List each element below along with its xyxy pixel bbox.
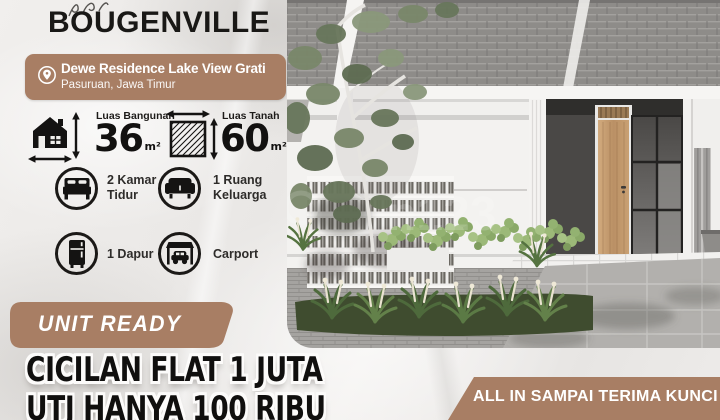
sofa-icon xyxy=(165,178,195,199)
carport-label: Carport xyxy=(213,247,258,262)
right-wall xyxy=(691,99,720,258)
promo-line-2: UTJ HANYA 100 RIBU xyxy=(26,389,326,420)
poster-background: BOUGENVILLE Dewe Residence Lake View Gra… xyxy=(0,0,720,420)
spec-building-number: 36 xyxy=(94,117,143,160)
spec-land-value: 60m² xyxy=(220,121,287,166)
all-in-label: ALL IN SAMPAI TERIMA KUNCI xyxy=(473,388,716,406)
watermark-text: n123 xyxy=(387,188,496,241)
front-door xyxy=(595,105,632,257)
kitchen-feature-circle xyxy=(55,232,98,275)
house-measure-icon xyxy=(28,111,94,165)
fridge-icon xyxy=(68,240,86,268)
bed-icon xyxy=(63,178,91,200)
all-in-badge: ALL IN SAMPAI TERIMA KUNCI xyxy=(443,377,720,420)
spec-land-number: 60 xyxy=(220,117,269,160)
bedroom-label: 2 Kamar Tidur xyxy=(107,173,156,203)
spec-land-unit: m² xyxy=(271,140,287,153)
location-pin-icon xyxy=(37,65,57,87)
living-label-line2: Keluarga xyxy=(213,188,267,203)
front-window xyxy=(632,116,682,256)
living-feature-circle xyxy=(158,167,201,210)
bedroom-label-line2: Tidur xyxy=(107,188,156,203)
land-area-icon xyxy=(164,108,224,164)
unit-ready-label: UNIT READY xyxy=(8,311,212,337)
kitchen-label: 1 Dapur xyxy=(107,247,154,262)
page-title: BOUGENVILLE xyxy=(48,6,270,40)
living-label-line1: 1 Ruang xyxy=(213,173,267,188)
living-label: 1 Ruang Keluarga xyxy=(213,173,267,203)
unit-ready-badge: UNIT READY xyxy=(8,301,238,349)
planter-pot xyxy=(701,230,720,234)
spec-building-value: 36m² xyxy=(94,121,161,166)
location-badge: Dewe Residence Lake View Grati Pasuruan,… xyxy=(25,54,286,100)
location-region: Pasuruan, Jawa Timur xyxy=(61,79,175,91)
bedroom-label-line1: 2 Kamar xyxy=(107,173,156,188)
location-name: Dewe Residence Lake View Grati xyxy=(61,61,266,76)
bedroom-feature-circle xyxy=(55,167,98,210)
carport-feature-circle xyxy=(158,232,201,275)
house-photo: n123 xyxy=(287,0,720,348)
spec-building-unit: m² xyxy=(145,140,161,153)
promo-line-1: CICILAN FLAT 1 JUTA xyxy=(26,350,323,390)
carport-icon xyxy=(165,242,195,266)
house-render: n123 xyxy=(287,0,720,348)
